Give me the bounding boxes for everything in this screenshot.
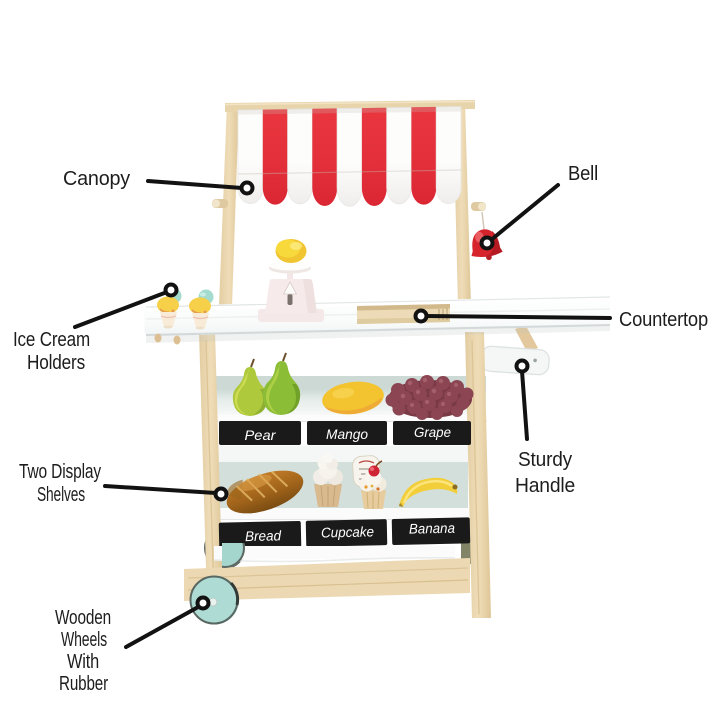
svg-text:Mango: Mango — [326, 426, 368, 442]
svg-text:Wooden: Wooden — [55, 607, 111, 629]
svg-text:Countertop: Countertop — [619, 309, 708, 331]
svg-text:Shelves: Shelves — [37, 484, 85, 506]
svg-text:Grape: Grape — [414, 424, 451, 440]
svg-text:Rubber: Rubber — [59, 673, 108, 695]
svg-text:Bread: Bread — [245, 527, 282, 544]
svg-text:Sturdy: Sturdy — [518, 449, 572, 471]
svg-text:Two Display: Two Display — [19, 461, 101, 483]
svg-text:Bell: Bell — [568, 163, 598, 185]
svg-text:With: With — [67, 651, 99, 673]
svg-text:Cupcake: Cupcake — [321, 523, 375, 540]
svg-text:Handle: Handle — [515, 475, 575, 497]
svg-text:Ice Cream: Ice Cream — [13, 329, 90, 351]
svg-text:Holders: Holders — [27, 352, 85, 374]
svg-text:Pear: Pear — [245, 427, 277, 443]
svg-text:Wheels: Wheels — [61, 629, 107, 651]
svg-text:Canopy: Canopy — [63, 168, 130, 190]
svg-text:Banana: Banana — [409, 520, 456, 537]
